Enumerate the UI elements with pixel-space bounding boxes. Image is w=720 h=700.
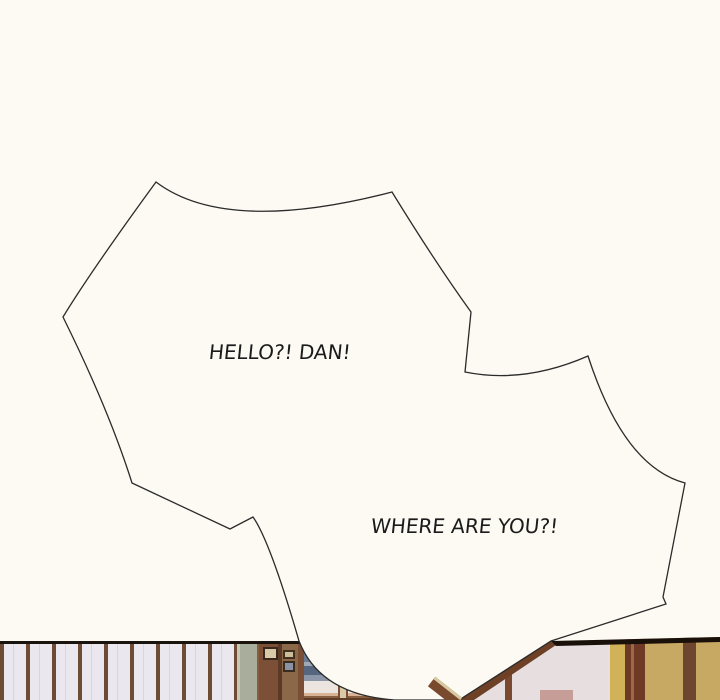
shout-bubble-outline (63, 182, 685, 700)
speech-bubbles (0, 0, 720, 700)
dialogue-bubble-2-text: WHERE ARE YOU?! (370, 514, 560, 538)
dialogue-bubble-1-text: HELLO?! DAN! (208, 340, 352, 364)
webtoon-panel: HELLO?! DAN! WHERE ARE YOU?! (0, 0, 720, 700)
